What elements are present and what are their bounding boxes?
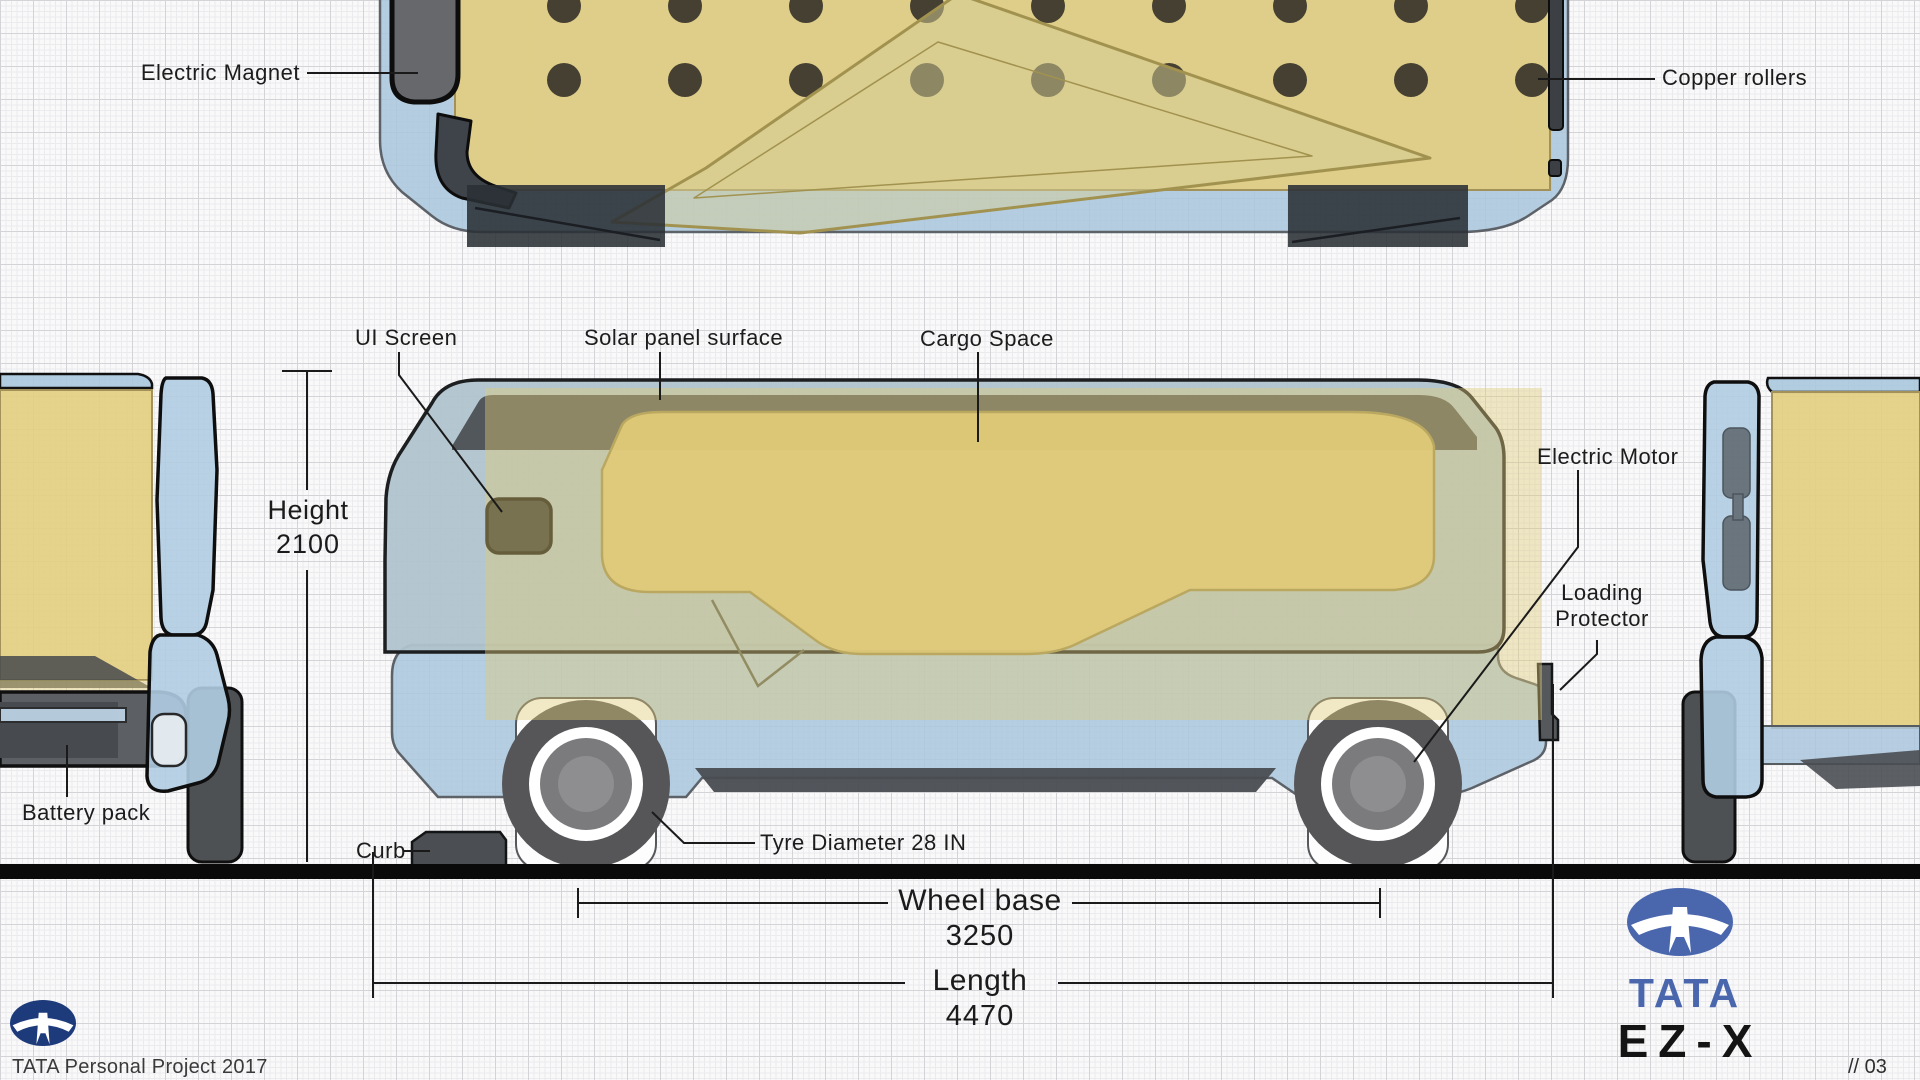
callout-loading-protector: Loading Protector <box>1532 580 1672 633</box>
length-label: Length <box>870 964 1090 998</box>
callout-electric-magnet: Electric Magnet <box>55 60 300 86</box>
callout-battery-pack: Battery pack <box>22 800 150 826</box>
left-roof-strip <box>0 374 152 388</box>
page-number: // 03 <box>1848 1056 1887 1079</box>
right-cargo-panel <box>1772 392 1920 728</box>
right-pillar <box>1703 382 1759 637</box>
callout-curb: Curb <box>356 838 406 864</box>
electric-magnet-block <box>392 0 458 102</box>
tata-logo-icon-large <box>1627 888 1733 956</box>
model-wordmark: EZ-X <box>1566 1014 1814 1068</box>
callout-copper-rollers: Copper rollers <box>1662 65 1807 91</box>
leader-loading-protector <box>1560 640 1597 690</box>
left-blue-slit <box>0 708 126 722</box>
callout-electric-motor: Electric Motor <box>1537 444 1678 470</box>
left-cargo-panel <box>0 390 152 680</box>
wheelbase-label: Wheel base <box>870 884 1090 918</box>
right-end-view <box>1683 378 1920 862</box>
tata-logo-icon-small <box>10 1000 76 1046</box>
left-pillar-skirt <box>147 635 230 791</box>
left-skirt-cut <box>152 714 186 766</box>
wheelbase-value: 3250 <box>870 920 1090 953</box>
length-value: 4470 <box>870 1000 1090 1033</box>
tata-wordmark: TATA <box>1595 970 1775 1017</box>
side-view <box>385 380 1558 870</box>
right-pillar-skirt <box>1701 637 1762 797</box>
leader-tyre <box>652 812 755 843</box>
callout-tyre-diameter: Tyre Diameter 28 IN <box>760 830 966 856</box>
top-view <box>380 0 1568 247</box>
front-wheel <box>502 700 670 868</box>
height-value: 2100 <box>233 529 383 560</box>
left-pillar <box>157 378 217 635</box>
callout-solar-panel-surface: Solar panel surface <box>584 325 783 351</box>
underbody-strip <box>695 768 1276 792</box>
height-dim-line <box>282 371 332 862</box>
ground-line <box>0 864 1920 879</box>
right-roof-strip <box>1767 378 1920 392</box>
callout-cargo-space: Cargo Space <box>920 326 1054 352</box>
wheelbase-dimension: Wheel base 3250 <box>870 884 1090 953</box>
height-label: Height <box>233 495 383 526</box>
height-dimension: Height 2100 <box>233 495 383 560</box>
callout-ui-screen: UI Screen <box>355 325 457 351</box>
blueprint-canvas: Electric Magnet Copper rollers UI Screen… <box>0 0 1920 1080</box>
solar-overlay <box>485 388 1542 720</box>
left-end-view <box>0 374 242 862</box>
length-dimension: Length 4470 <box>870 964 1090 1033</box>
rear-wheel <box>1294 700 1462 868</box>
project-credit: TATA Personal Project 2017 <box>12 1056 268 1079</box>
